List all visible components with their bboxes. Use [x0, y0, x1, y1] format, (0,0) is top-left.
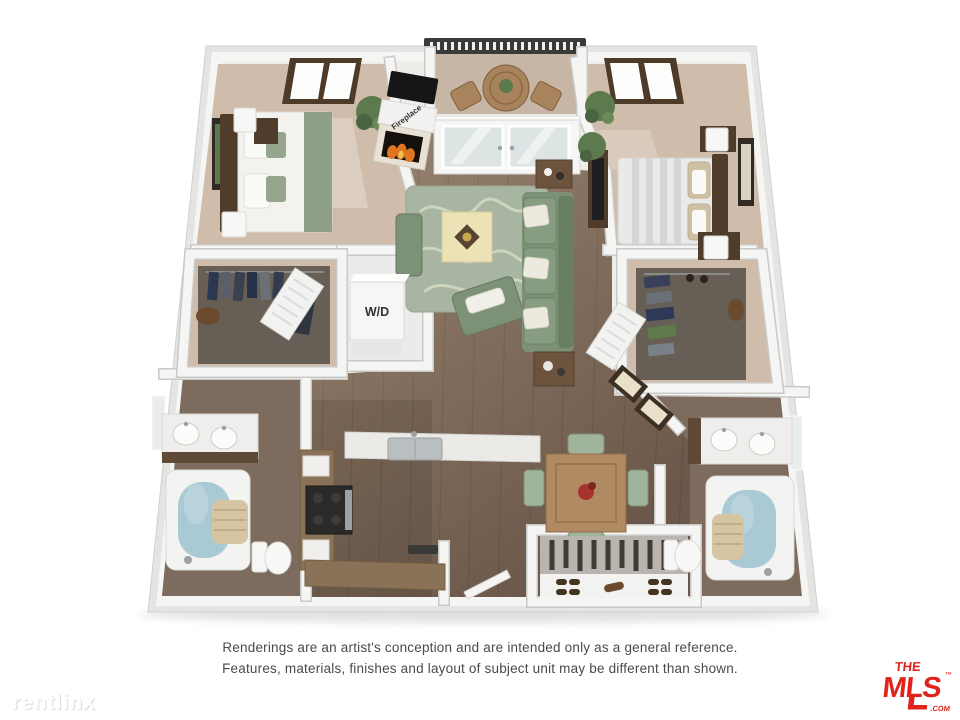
duffel-bag-icon — [196, 307, 220, 325]
floor-plan-page: Fireplace — [0, 0, 960, 720]
disclaimer: Renderings are an artist's conception an… — [0, 637, 960, 679]
tv-icon — [592, 158, 604, 220]
rentlinx-watermark: rentlinx — [12, 691, 96, 715]
sink-icon-2 — [211, 427, 237, 449]
faucet-icon — [411, 431, 417, 437]
end-table — [534, 352, 574, 386]
sink-icon-3 — [711, 429, 737, 451]
cube-sconce-icon-3 — [706, 128, 728, 151]
table-plant-icon — [499, 79, 513, 93]
cube-sconce-icon-4 — [704, 236, 728, 259]
accent-pillow-2 — [266, 176, 286, 202]
bag-icon — [728, 299, 744, 321]
cube-sconce-icon-2 — [222, 212, 246, 237]
railing — [424, 38, 586, 54]
mls-logo-com: .COM — [930, 704, 951, 713]
kitchen-cabinets-bottom — [305, 560, 445, 590]
bed-blanket — [304, 112, 332, 232]
pillow-white-2 — [692, 210, 706, 234]
sofa-back — [558, 196, 574, 348]
towel-stack-2 — [712, 514, 744, 560]
towel-stack — [212, 500, 248, 544]
toilet-2 — [664, 540, 701, 572]
mls-logo-tm: ™ — [944, 672, 952, 679]
armchair — [396, 214, 422, 276]
sink-icon — [173, 423, 199, 445]
wd-label: W/D — [365, 305, 389, 319]
floor-plan-rendering: Fireplace — [0, 0, 960, 632]
tub-faucet-icon — [184, 556, 192, 564]
cube-sconce-icon — [234, 108, 256, 132]
sofa-throw-pillows — [523, 204, 550, 329]
door-handle-2 — [510, 146, 514, 150]
nightstand — [254, 118, 278, 144]
bedroom-1-window — [282, 58, 362, 104]
tub-faucet-icon-2 — [764, 568, 772, 576]
vanity-cabinet — [162, 452, 258, 463]
mls-logo: THE MLS .COM ™ — [876, 655, 956, 717]
vanity-cabinet-2 — [688, 418, 701, 464]
door-handle — [498, 146, 502, 150]
walk-in-closet-left — [196, 266, 330, 364]
range-handle — [345, 490, 352, 530]
bedroom-2-window — [604, 58, 684, 104]
cabinet-front — [303, 456, 329, 476]
mls-logo-l-foot — [908, 705, 927, 710]
sink-icon-4 — [749, 433, 775, 455]
cabinet-front-2 — [303, 540, 329, 560]
console-table — [536, 160, 572, 188]
pillow-white — [692, 170, 706, 194]
disclaimer-line-2: Features, materials, finishes and layout… — [0, 658, 960, 679]
washer-dryer-closet: W/D — [348, 274, 410, 356]
countertop-appliance — [408, 545, 438, 554]
toilet — [252, 542, 291, 574]
disclaimer-line-1: Renderings are an artist's conception an… — [0, 637, 960, 658]
